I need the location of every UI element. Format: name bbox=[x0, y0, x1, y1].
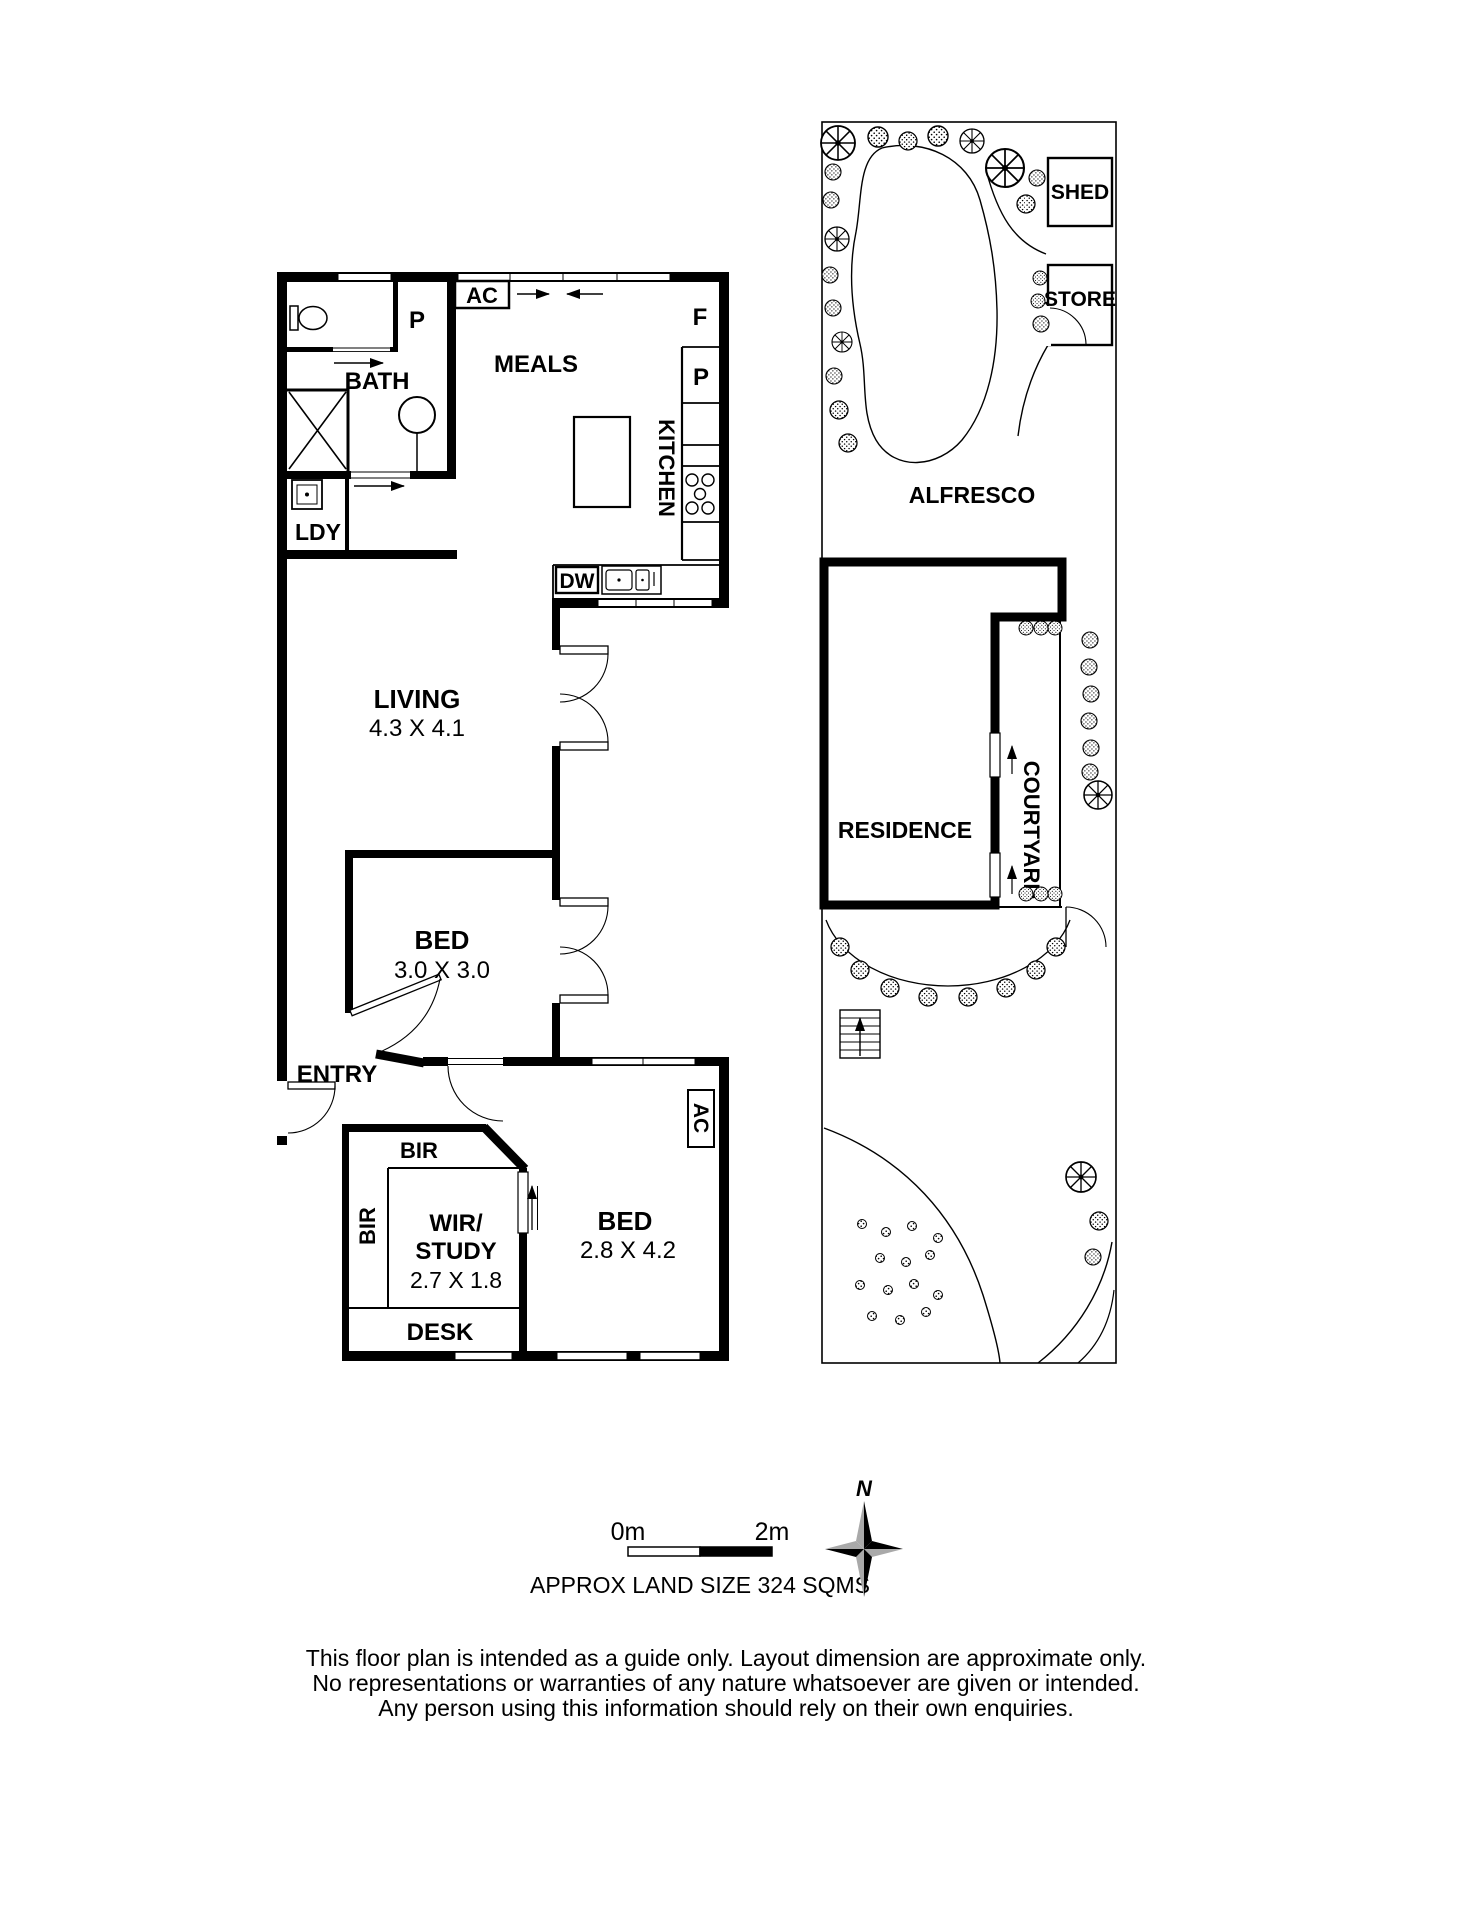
island-bench bbox=[574, 417, 630, 507]
courtyard-sliding-door-upper bbox=[990, 733, 1012, 777]
store-label: STORE bbox=[1044, 288, 1116, 311]
fridge-label: F bbox=[693, 304, 708, 331]
living-label: LIVING bbox=[374, 684, 461, 714]
residence-rear-door bbox=[1066, 907, 1106, 947]
disclaimer-line-2: No representations or warranties of any … bbox=[312, 1670, 1139, 1696]
ac-bed2-label: AC bbox=[689, 1103, 712, 1133]
living-double-door bbox=[560, 646, 608, 750]
entry-angled-wall bbox=[376, 1054, 424, 1063]
alfresco-label: ALFRESCO bbox=[909, 482, 1036, 508]
site-plan: SHED STORE bbox=[821, 122, 1116, 1363]
living-dims: 4.3 X 4.1 bbox=[369, 715, 465, 742]
compass-north-label: N bbox=[856, 1476, 873, 1501]
ac-unit-meals: AC bbox=[455, 281, 603, 308]
land-size-label: APPROX LAND SIZE 324 SQMS bbox=[530, 1572, 870, 1598]
disclaimer-line-1: This floor plan is intended as a guide o… bbox=[306, 1645, 1146, 1671]
pebble-dots bbox=[856, 1220, 943, 1325]
wir-sliding-door bbox=[518, 1172, 538, 1233]
pantry-hall-label: P bbox=[409, 307, 425, 334]
bed1-label: BED bbox=[415, 925, 470, 955]
disclaimer-line-3: Any person using this information should… bbox=[378, 1695, 1074, 1721]
residence-label: RESIDENCE bbox=[838, 817, 972, 843]
floorplan-page: SHED STORE bbox=[0, 0, 1472, 1905]
wir-dims: 2.7 X 1.8 bbox=[410, 1267, 502, 1293]
wir-diagonal-wall bbox=[484, 1127, 525, 1169]
laundry-trough-icon bbox=[292, 480, 322, 509]
kitchen-label: KITCHEN bbox=[654, 419, 679, 517]
wir-label-1: WIR/ bbox=[429, 1210, 483, 1237]
dishwasher: DW bbox=[556, 567, 598, 593]
garden-path-curve-right2 bbox=[1078, 1290, 1114, 1363]
basin-icon bbox=[399, 397, 435, 471]
rear-garden-trees bbox=[1066, 1162, 1108, 1265]
bed1-double-door bbox=[560, 898, 608, 1003]
hall-door-arc bbox=[448, 1066, 503, 1121]
shed-label: SHED bbox=[1051, 181, 1109, 204]
front-door bbox=[288, 1082, 335, 1133]
bed1-dims: 3.0 X 3.0 bbox=[394, 957, 490, 984]
courtyard-sliding-door-lower bbox=[990, 853, 1012, 897]
rear-garden-shrub-band bbox=[831, 938, 1065, 1006]
shower-icon bbox=[287, 390, 348, 471]
floorplan-drawing: SHED STORE bbox=[0, 0, 1472, 1905]
disclaimer: This floor plan is intended as a guide o… bbox=[306, 1645, 1146, 1721]
meals-label: MEALS bbox=[494, 351, 578, 378]
garden-bed-curve-mid bbox=[1018, 345, 1048, 436]
ac-meals-label: AC bbox=[466, 283, 498, 308]
wir-label-2: STUDY bbox=[415, 1238, 496, 1265]
footer: 0m 2m APPROX LAND SIZE 324 SQMS N This f… bbox=[306, 1476, 1146, 1721]
laundry-label: LDY bbox=[295, 519, 341, 545]
shed: SHED bbox=[1048, 158, 1112, 226]
lawn-outline bbox=[852, 145, 997, 462]
dishwasher-label: DW bbox=[560, 570, 595, 593]
ac-unit-bed2: AC bbox=[688, 1090, 714, 1147]
bir-side-label: BIR bbox=[355, 1207, 380, 1245]
bath-label: BATH bbox=[345, 368, 410, 395]
scale-end-label: 2m bbox=[755, 1518, 790, 1546]
cooktop-icon bbox=[686, 474, 714, 514]
toilet-icon bbox=[290, 306, 327, 330]
scale-start-label: 0m bbox=[611, 1518, 646, 1546]
garden-path-curve bbox=[824, 1128, 1000, 1363]
unit-plan: AC DW bbox=[277, 272, 729, 1361]
desk-label: DESK bbox=[407, 1319, 474, 1346]
bed2-dims: 2.8 X 4.2 bbox=[580, 1237, 676, 1264]
stairs-icon bbox=[840, 1010, 880, 1058]
sink-icon bbox=[602, 566, 661, 594]
pantry-kitchen-label: P bbox=[693, 364, 709, 391]
courtyard-label: COURTYARD bbox=[1019, 761, 1044, 900]
bed1-entry-door bbox=[350, 974, 441, 1052]
garden-shrubs-top bbox=[821, 126, 1049, 452]
bed2-label: BED bbox=[598, 1206, 653, 1236]
scale-bar: 0m 2m bbox=[611, 1518, 790, 1556]
store: STORE bbox=[1044, 265, 1116, 346]
bir-top-label: BIR bbox=[400, 1138, 438, 1163]
entry-label: ENTRY bbox=[297, 1061, 377, 1088]
